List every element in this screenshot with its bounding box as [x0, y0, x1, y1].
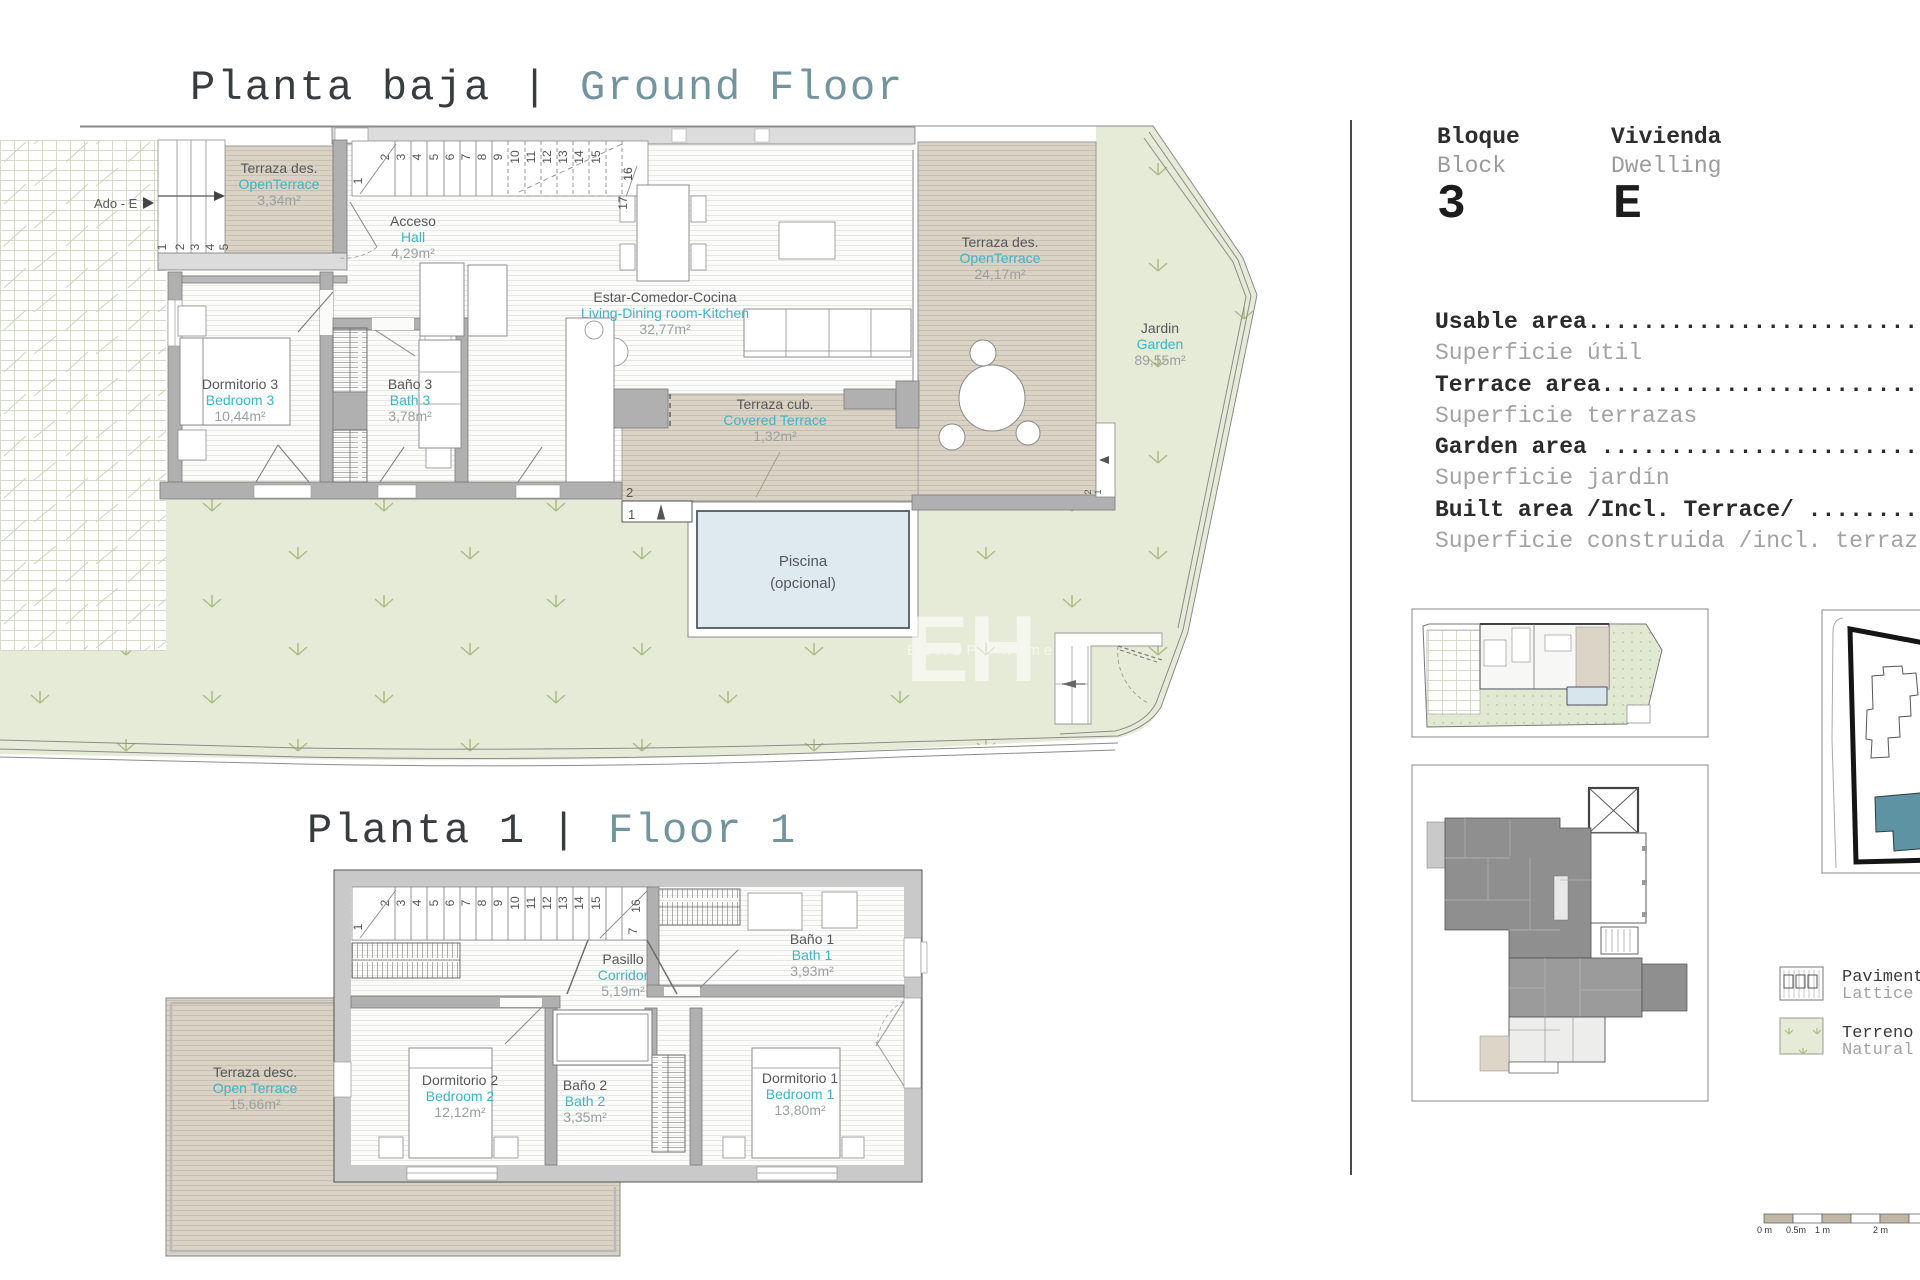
svg-text:3,34m²: 3,34m²: [257, 192, 301, 208]
svg-text:1: 1: [628, 507, 635, 522]
svg-text:Bloque: Bloque: [1437, 124, 1520, 150]
svg-text:10: 10: [508, 150, 522, 164]
svg-text:5: 5: [427, 153, 441, 160]
svg-text:14: 14: [572, 150, 586, 164]
svg-text:2: 2: [173, 243, 187, 250]
svg-text:8: 8: [475, 153, 489, 160]
svg-text:3,78m²: 3,78m²: [388, 408, 432, 424]
svg-text:10,44m²: 10,44m²: [214, 408, 266, 424]
svg-text:Usable area...................: Usable area...........................: [1435, 309, 1920, 335]
svg-text:1: 1: [351, 177, 365, 184]
svg-text:Bath 2: Bath 2: [565, 1093, 606, 1109]
svg-text:5,19m²: 5,19m²: [601, 983, 645, 999]
svg-text:Baño 3: Baño 3: [388, 376, 433, 392]
svg-text:0 m: 0 m: [1757, 1225, 1772, 1235]
svg-text:Covered Terrace: Covered Terrace: [723, 412, 826, 428]
svg-text:Acceso: Acceso: [390, 213, 436, 229]
svg-text:Block: Block: [1437, 153, 1506, 179]
svg-text:Planta baja: Planta baja: [190, 64, 491, 112]
svg-text:Bedroom 1: Bedroom 1: [766, 1086, 835, 1102]
svg-text:Baño 2: Baño 2: [563, 1077, 608, 1093]
svg-text:Ground Floor: Ground Floor: [580, 64, 904, 112]
svg-text:8: 8: [475, 899, 489, 906]
svg-text:32,77m²: 32,77m²: [639, 321, 691, 337]
svg-text:Terraza des.: Terraza des.: [240, 160, 317, 176]
svg-text:12: 12: [540, 150, 554, 164]
svg-text:15: 15: [589, 150, 603, 164]
svg-text:13: 13: [556, 150, 570, 164]
svg-text:5: 5: [217, 243, 231, 250]
svg-text:Bedroom 3: Bedroom 3: [206, 392, 275, 408]
svg-text:OpenTerrace: OpenTerrace: [960, 250, 1041, 266]
svg-text:Floor 1: Floor 1: [608, 807, 797, 855]
svg-text:24,17m²: 24,17m²: [974, 266, 1026, 282]
svg-text:2: 2: [1083, 489, 1093, 494]
svg-text:EUROPE homes: EUROPE homes: [907, 642, 1068, 659]
svg-text:Open Terrace: Open Terrace: [213, 1080, 298, 1096]
svg-text:3: 3: [1437, 178, 1466, 232]
svg-text:|: |: [551, 807, 576, 855]
svg-text:Hall: Hall: [401, 229, 425, 245]
svg-text:|: |: [522, 64, 547, 112]
svg-text:3: 3: [188, 243, 202, 250]
svg-text:16: 16: [629, 899, 643, 913]
svg-text:Superficie construida /incl. t: Superficie construida /incl. terraz: [1435, 528, 1918, 554]
svg-text:(opcional): (opcional): [770, 575, 836, 592]
svg-text:Superficie útil: Superficie útil: [1435, 340, 1642, 366]
svg-text:10: 10: [508, 896, 522, 910]
svg-text:Terraza cub.: Terraza cub.: [736, 396, 813, 412]
svg-text:Jardin: Jardin: [1141, 320, 1179, 336]
svg-text:9: 9: [491, 899, 505, 906]
svg-text:0.5m: 0.5m: [1786, 1225, 1806, 1235]
svg-text:Superficie terrazas: Superficie terrazas: [1435, 403, 1697, 429]
svg-text:15: 15: [589, 896, 603, 910]
svg-text:12: 12: [540, 896, 554, 910]
svg-text:Terrace area..................: Terrace area..........................: [1435, 372, 1920, 398]
svg-text:Bath 1: Bath 1: [792, 947, 833, 963]
svg-text:E: E: [1613, 178, 1642, 232]
svg-text:Vivienda: Vivienda: [1611, 124, 1722, 150]
svg-text:2: 2: [626, 485, 633, 500]
svg-text:9: 9: [491, 153, 505, 160]
svg-text:Terraza desc.: Terraza desc.: [213, 1064, 297, 1080]
svg-text:2 m: 2 m: [1873, 1225, 1888, 1235]
svg-text:Estar-Comedor-Cocina: Estar-Comedor-Cocina: [593, 289, 736, 305]
svg-text:1: 1: [351, 923, 365, 930]
svg-text:Lattice floo: Lattice floo: [1842, 985, 1920, 1004]
svg-text:Living-Dining room-Kitchen: Living-Dining room-Kitchen: [581, 305, 749, 321]
svg-text:7: 7: [626, 927, 640, 934]
svg-text:Dormitorio 3: Dormitorio 3: [202, 376, 278, 392]
svg-text:4: 4: [203, 243, 217, 250]
svg-text:7: 7: [459, 899, 473, 906]
svg-text:17: 17: [616, 196, 630, 210]
svg-text:12,12m²: 12,12m²: [434, 1104, 486, 1120]
svg-text:11: 11: [524, 150, 538, 163]
svg-text:OpenTerrace: OpenTerrace: [239, 176, 320, 192]
svg-text:Bath 3: Bath 3: [390, 392, 431, 408]
svg-text:Superficie jardín: Superficie jardín: [1435, 465, 1670, 491]
svg-text:Terraza des.: Terraza des.: [961, 234, 1038, 250]
svg-text:Garden area ..................: Garden area ..........................: [1435, 434, 1920, 460]
svg-text:Planta 1: Planta 1: [307, 807, 526, 855]
svg-text:4,29m²: 4,29m²: [391, 245, 435, 261]
svg-text:13,80m²: 13,80m²: [774, 1102, 826, 1118]
svg-text:Dormitorio 1: Dormitorio 1: [762, 1070, 838, 1086]
svg-text:Bedroom 2: Bedroom 2: [426, 1088, 495, 1104]
svg-text:6: 6: [443, 899, 457, 906]
svg-text:6: 6: [443, 153, 457, 160]
svg-text:Garden: Garden: [1137, 336, 1184, 352]
svg-text:3,35m²: 3,35m²: [563, 1109, 607, 1125]
svg-text:Natural grou: Natural grou: [1842, 1041, 1920, 1060]
svg-text:14: 14: [572, 896, 586, 910]
svg-text:3: 3: [394, 153, 408, 160]
svg-text:13: 13: [556, 896, 570, 910]
svg-text:16: 16: [621, 167, 635, 181]
svg-text:Corridor: Corridor: [598, 967, 649, 983]
svg-text:Piscina: Piscina: [779, 553, 828, 570]
svg-text:1: 1: [155, 243, 169, 250]
svg-text:1 m: 1 m: [1815, 1225, 1830, 1235]
svg-text:89,55m²: 89,55m²: [1134, 352, 1186, 368]
svg-text:5: 5: [427, 899, 441, 906]
svg-text:Dwelling: Dwelling: [1611, 153, 1721, 179]
svg-text:Built area /Incl. Terrace/ ...: Built area /Incl. Terrace/ ...........: [1435, 497, 1920, 523]
svg-text:Pasillo: Pasillo: [602, 951, 643, 967]
svg-text:3: 3: [394, 899, 408, 906]
svg-text:7: 7: [459, 153, 473, 160]
svg-text:4: 4: [410, 899, 424, 906]
svg-text:15,66m²: 15,66m²: [229, 1096, 281, 1112]
svg-text:Baño 1: Baño 1: [790, 931, 835, 947]
svg-text:11: 11: [524, 896, 538, 909]
svg-text:Ado - E: Ado - E: [94, 196, 138, 211]
svg-text:3,93m²: 3,93m²: [790, 963, 834, 979]
svg-text:4: 4: [410, 153, 424, 160]
svg-text:1,32m²: 1,32m²: [753, 428, 797, 444]
svg-text:Dormitorio 2: Dormitorio 2: [422, 1072, 498, 1088]
svg-text:1: 1: [1093, 489, 1103, 494]
